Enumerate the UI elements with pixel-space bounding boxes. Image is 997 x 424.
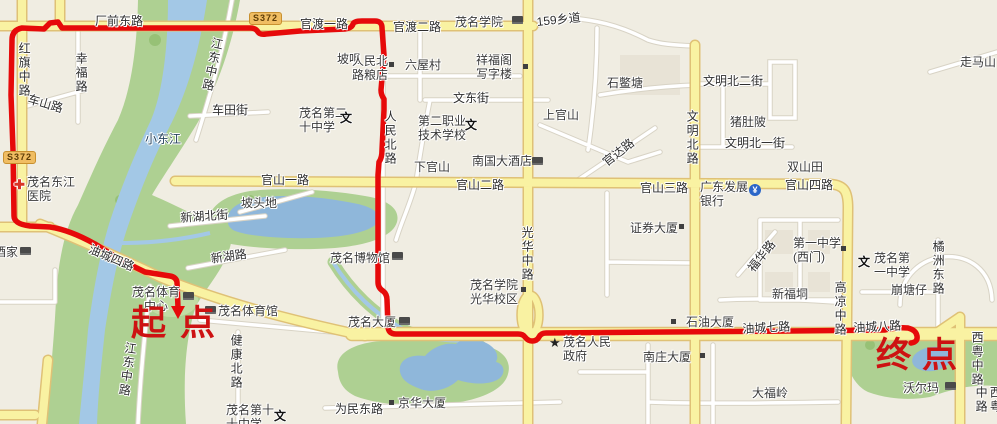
place-xiaguanshan: 下官山	[414, 160, 450, 174]
poi-renmin-zhengfu: 茂名人民 政府	[563, 335, 611, 363]
school-wen-icon-zhiye: 文	[465, 119, 477, 131]
poi-dongjiang-hospital: 茂名东江 医院	[27, 175, 75, 203]
place-shibietang: 石鳖塘	[607, 76, 643, 90]
school-wen-icon-no20: 文	[340, 112, 352, 124]
building-marker-zhengquan	[679, 224, 684, 229]
road-guanghua-zhonglu: 光华中路	[520, 226, 534, 282]
place-zoumashan: 走马山	[960, 55, 996, 69]
road-changqiandonglu: 厂前东路	[95, 14, 143, 28]
road-wenmingbeilu: 文明北路	[685, 110, 699, 166]
badge-s372-west: S372	[3, 151, 36, 164]
poi-jiujia: 酒家	[0, 245, 18, 259]
poi-guanghua-xiaoqu: 茂名学院 光华校区	[470, 278, 518, 306]
road-guandu-1-lu: 官渡一路	[300, 17, 348, 31]
school-wen-icon-no10: 文	[274, 410, 286, 422]
road-wendongjie: 文东街	[453, 91, 489, 105]
building-marker-xi-men	[841, 246, 846, 251]
place-zhudupo: 猪肚陂	[730, 115, 766, 129]
poi-guangdong-fazhan-bank: 广东发展 银行	[700, 180, 748, 208]
college-icon	[512, 16, 523, 24]
poi-zhengquan-dasha: 证券大厦	[630, 221, 678, 235]
road-guanshan-4-lu: 官山四路	[785, 178, 833, 192]
poi-xiangfuge-xiezilou: 祥福阁 写字楼	[476, 53, 512, 81]
poi-maoming-bowuguan: 茂名博物馆	[330, 251, 390, 265]
poi-maoming-xueyuan: 茂名学院	[455, 15, 503, 29]
poi-maoming-no1-school: 茂名第 一中学	[874, 251, 910, 279]
road-guandu-2-lu: 官渡二路	[393, 20, 441, 34]
road-juzhou-donglu: 橘洲东路	[931, 240, 945, 296]
place-dafuling: 大福岭	[752, 386, 788, 400]
poi-renminbeilu-liangdian: 人民北 路粮店	[352, 54, 388, 82]
road-youcheng-7-lu: 油城七路	[742, 319, 791, 336]
place-potoudi: 坡头地	[241, 196, 277, 210]
walmart-icon	[945, 382, 956, 390]
road-renminbeilu: 人民北路	[383, 110, 397, 166]
hotel-icon-jiujia	[20, 247, 31, 255]
road-wenmingbei-1-jie: 文明北一街	[725, 136, 785, 150]
place-liuwucun: 六屋村	[405, 58, 441, 72]
building-marker-liangdian	[389, 62, 394, 67]
road-xiyue-zhonglu-1: 西粤中路	[970, 331, 984, 387]
bank-icon: ¥	[749, 184, 761, 196]
road-youcheng-8-lu: 油城八路	[853, 318, 902, 335]
water-xiaodongjiang: 小东江	[145, 132, 181, 146]
badge-s372-north: S372	[249, 12, 282, 25]
poi-shiyou-dasha: 石油大厦	[686, 315, 734, 329]
poi-no1-school-westgate: 第一中学 (西门)	[793, 236, 841, 264]
poi-walmart: 沃尔玛	[903, 381, 939, 395]
hotel-icon-maoming-dasha	[399, 317, 410, 325]
road-weimindonglu: 为民东路	[335, 402, 383, 416]
route-start-marker: 起点	[131, 306, 229, 341]
route-end-marker: 终点	[876, 338, 968, 373]
road-xingfulu: 幸福路	[74, 52, 88, 94]
road-guanshan-2-lu: 官山二路	[456, 178, 504, 192]
poi-jinghua-dasha: 京华大厦	[398, 396, 446, 410]
stadium-icon-zhongxin	[183, 292, 194, 300]
poi-maoming-no10-school: 茂名第十 十中学	[226, 403, 274, 424]
place-bengtangzai: 崩塘仔	[891, 283, 927, 297]
place-xinfudong: 新福垌	[772, 287, 808, 301]
poi-maoming-dasha: 茂名大厦	[348, 315, 396, 329]
building-marker-guanghuaxq	[521, 287, 526, 292]
poi-nanzhuang-dasha: 南庄大厦	[643, 350, 691, 364]
road-gaoliang-zhonglu: 高凉中路	[833, 281, 847, 337]
building-marker-jinghua	[389, 400, 394, 405]
building-marker-xiangfuge	[523, 64, 528, 69]
poi-nanguo-dajiudian: 南国大酒店	[472, 154, 532, 168]
road-jiankangbeilu: 健康北路	[229, 334, 243, 390]
road-guanshan-1-lu: 官山一路	[261, 173, 309, 187]
hospital-cross-icon: ✚	[14, 178, 25, 191]
place-shuangshantian: 双山田	[787, 160, 823, 174]
road-xiyue-zhonglu-2: 西粤中路	[974, 386, 997, 424]
map-canvas[interactable]: 厂前东路官渡一路官渡二路茂名学院159乡道红旗中路幸福路车山路江东中路车田街茂名…	[0, 0, 997, 424]
place-shangguanshan: 上官山	[543, 108, 579, 122]
government-star-icon: ★	[549, 337, 561, 350]
road-hongqi-zhonglu: 红旗中路	[17, 42, 31, 98]
road-chetianjie: 车田街	[212, 103, 248, 117]
road-guanshan-3-lu: 官山三路	[640, 181, 688, 195]
road-wenmingbei-2-jie: 文明北二街	[703, 74, 763, 88]
hotel-icon-nanguo	[532, 157, 543, 165]
school-wen-icon-no1: 文	[858, 256, 870, 268]
poi-dier-zhiye-school: 第二职业 技术学校	[418, 114, 466, 142]
building-marker-nanzhuang	[700, 353, 705, 358]
building-marker-shiyou	[671, 319, 676, 324]
museum-icon	[392, 252, 403, 260]
